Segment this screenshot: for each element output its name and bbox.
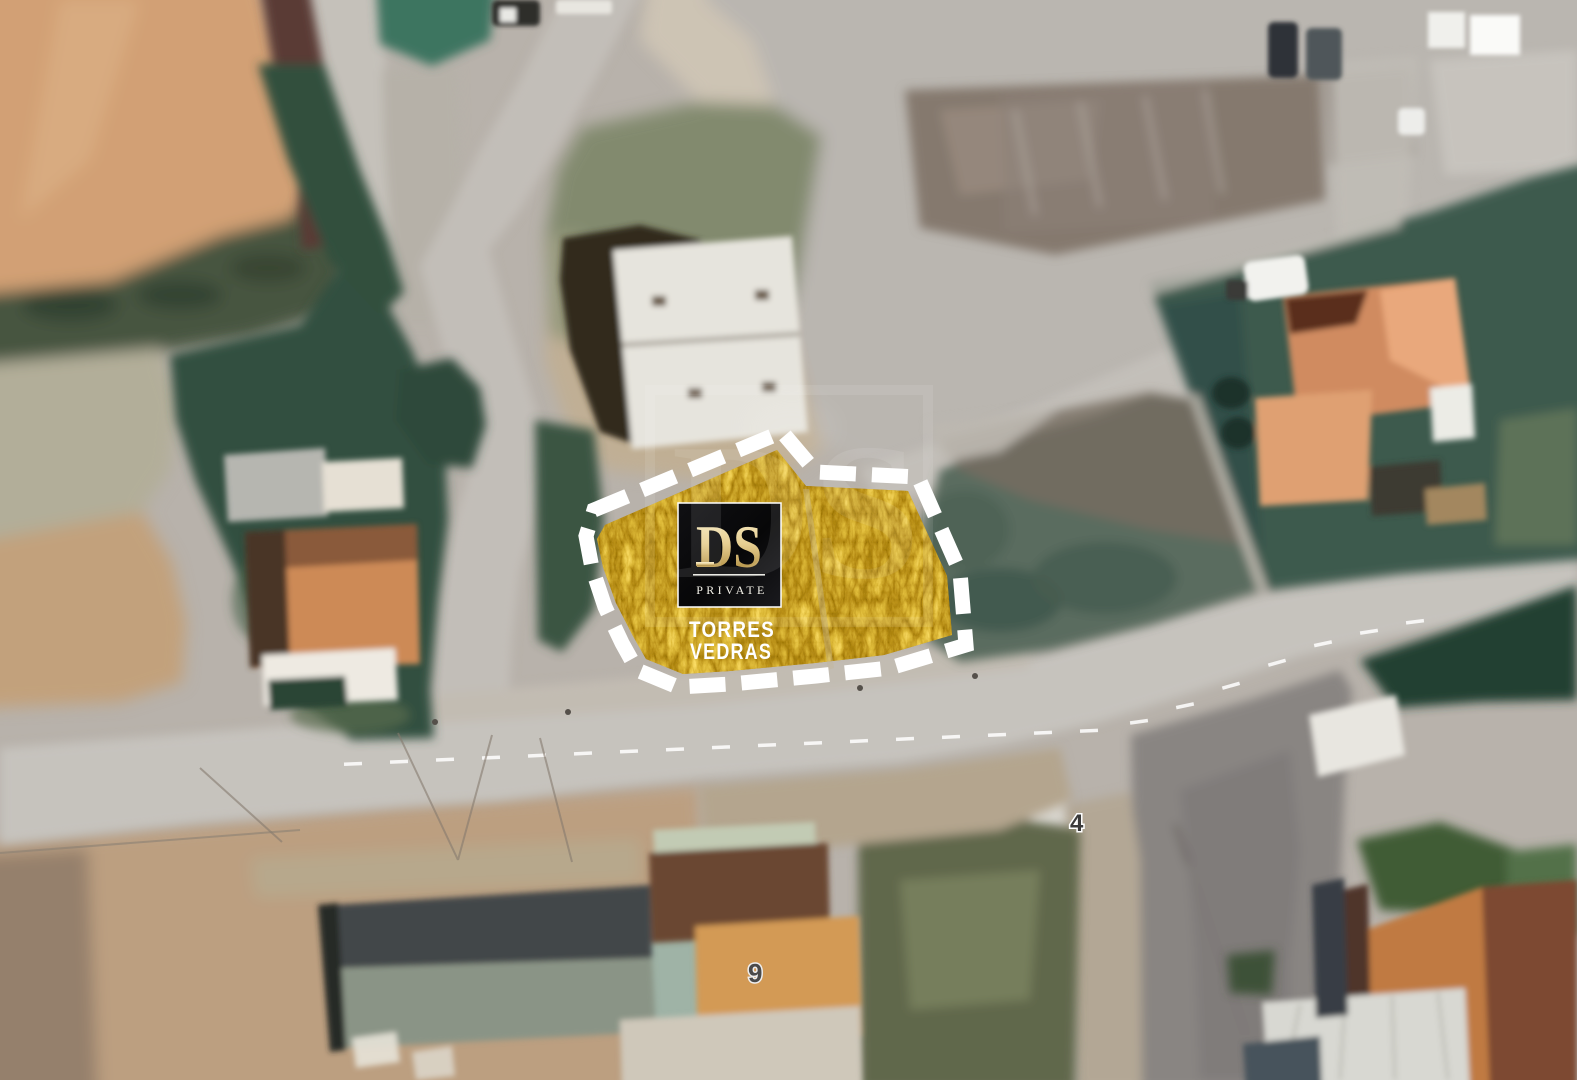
svg-text:4: 4	[1070, 810, 1084, 837]
svg-text:9: 9	[748, 958, 762, 988]
svg-text:VEDRAS: VEDRAS	[690, 639, 772, 664]
